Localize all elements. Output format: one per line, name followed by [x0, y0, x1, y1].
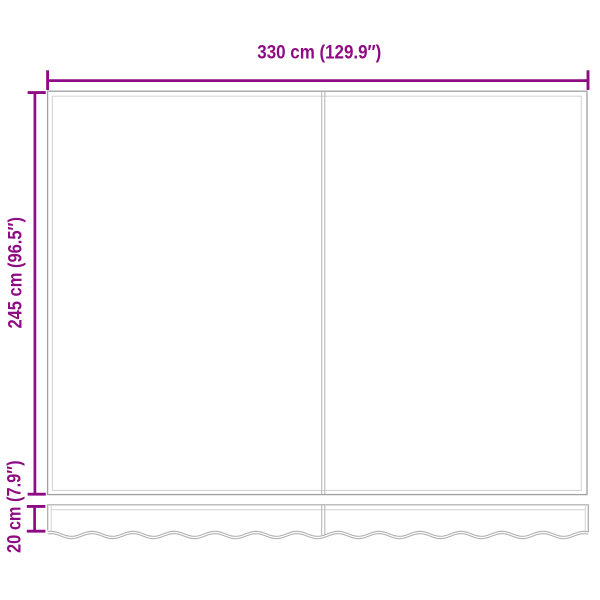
svg-text:20 cm (7.9″): 20 cm (7.9″) — [4, 460, 26, 553]
svg-text:330 cm (129.9″): 330 cm (129.9″) — [257, 42, 381, 64]
svg-text:245 cm (96.5″): 245 cm (96.5″) — [5, 217, 27, 329]
